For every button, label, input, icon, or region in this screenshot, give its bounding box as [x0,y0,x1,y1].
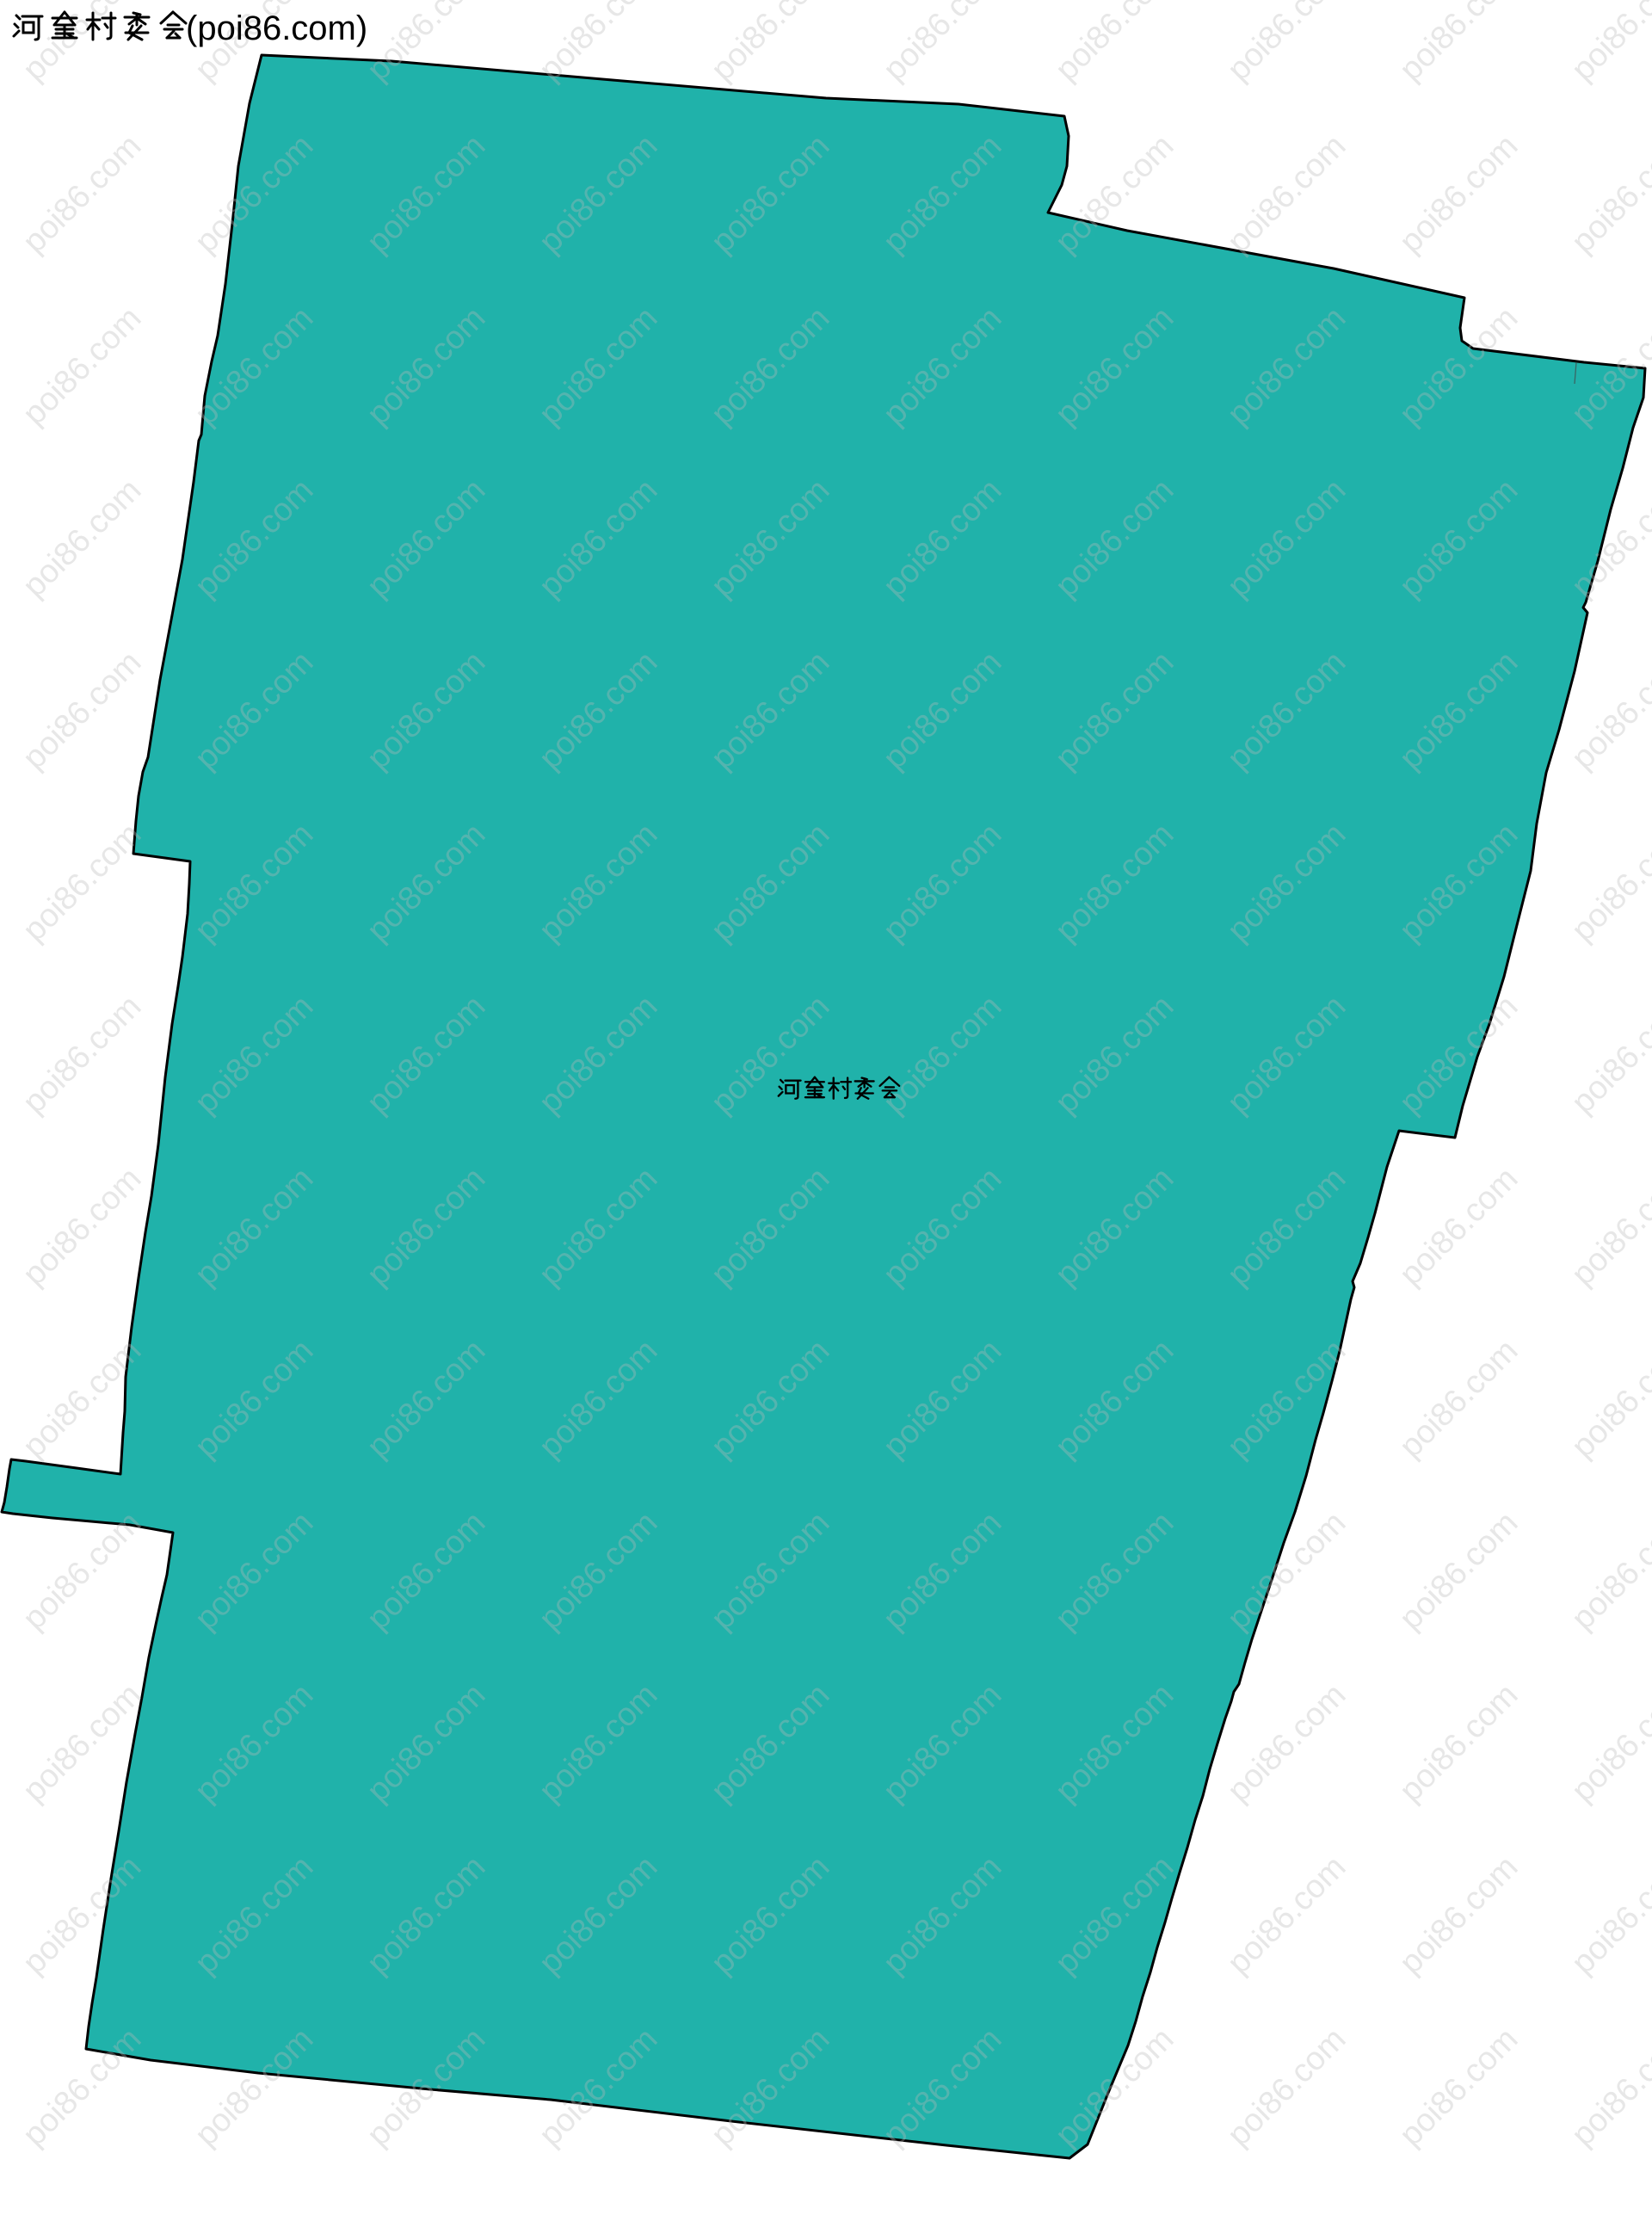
svg-text:poi86.com: poi86.com [16,128,149,261]
svg-text:poi86.com: poi86.com [16,2021,149,2154]
svg-text:poi86.com: poi86.com [16,1505,149,1638]
svg-text:poi86.com: poi86.com [1565,1161,1652,1293]
svg-text:poi86.com: poi86.com [1565,1677,1652,1810]
svg-text:(poi86.com): (poi86.com) [186,9,367,47]
svg-text:poi86.com: poi86.com [533,0,665,88]
svg-text:poi86.com: poi86.com [1565,817,1652,949]
svg-text:poi86.com: poi86.com [1393,2021,1526,2154]
svg-text:poi86.com: poi86.com [1221,2021,1353,2154]
svg-text:poi86.com: poi86.com [877,0,1009,88]
svg-text:poi86.com: poi86.com [1221,0,1353,88]
svg-text:poi86.com: poi86.com [705,0,837,88]
svg-text:poi86.com: poi86.com [1565,2021,1652,2154]
svg-text:poi86.com: poi86.com [1565,1505,1652,1638]
svg-text:poi86.com: poi86.com [16,989,149,1121]
svg-text:poi86.com: poi86.com [1221,1849,1353,1982]
svg-text:poi86.com: poi86.com [1565,128,1652,261]
svg-text:poi86.com: poi86.com [16,1161,149,1293]
svg-text:poi86.com: poi86.com [1221,1677,1353,1810]
svg-text:poi86.com: poi86.com [1049,0,1181,88]
svg-text:poi86.com: poi86.com [1565,645,1652,777]
svg-text:poi86.com: poi86.com [1565,1333,1652,1465]
svg-text:poi86.com: poi86.com [1565,989,1652,1121]
svg-text:poi86.com: poi86.com [1393,1849,1526,1982]
svg-text:poi86.com: poi86.com [16,300,149,433]
svg-text:poi86.com: poi86.com [16,472,149,605]
svg-text:poi86.com: poi86.com [1393,1333,1526,1465]
svg-text:poi86.com: poi86.com [1393,1505,1526,1638]
svg-text:poi86.com: poi86.com [1393,0,1526,88]
svg-text:poi86.com: poi86.com [1221,128,1353,261]
svg-text:poi86.com: poi86.com [16,645,149,777]
svg-text:poi86.com: poi86.com [1565,1849,1652,1982]
svg-text:poi86.com: poi86.com [16,0,149,88]
svg-text:poi86.com: poi86.com [1393,1161,1526,1293]
svg-text:poi86.com: poi86.com [1393,1677,1526,1810]
svg-text:poi86.com: poi86.com [16,817,149,949]
svg-text:poi86.com: poi86.com [1393,128,1526,261]
svg-text:poi86.com: poi86.com [1565,0,1652,88]
